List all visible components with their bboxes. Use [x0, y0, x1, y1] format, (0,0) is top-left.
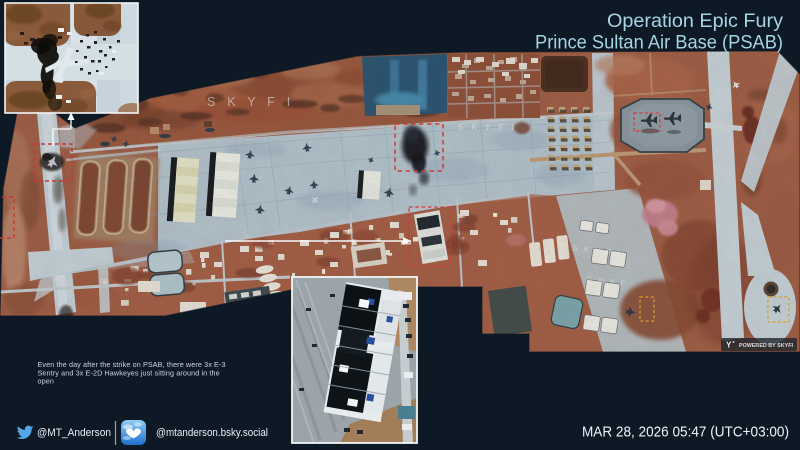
svg-text:Operation Epic Fury: Operation Epic Fury — [607, 10, 783, 32]
svg-text:Prince Sultan Air Base (PSAB): Prince Sultan Air Base (PSAB) — [535, 32, 783, 54]
svg-text:POWERED BY SKYFI: POWERED BY SKYFI — [739, 343, 793, 349]
svg-text:Sentry and 3x E-2D Hawkeyes ju: Sentry and 3x E-2D Hawkeyes just sitting… — [38, 368, 220, 377]
svg-text:Y: Y — [726, 341, 732, 350]
svg-text:@mtanderson.bsky.social: @mtanderson.bsky.social — [156, 427, 268, 439]
svg-text:open: open — [38, 377, 54, 386]
svg-text:@MT_Anderson: @MT_Anderson — [37, 427, 111, 439]
svg-text:MAR 28, 2026 05:47 (UTC+03:00): MAR 28, 2026 05:47 (UTC+03:00) — [582, 424, 789, 441]
